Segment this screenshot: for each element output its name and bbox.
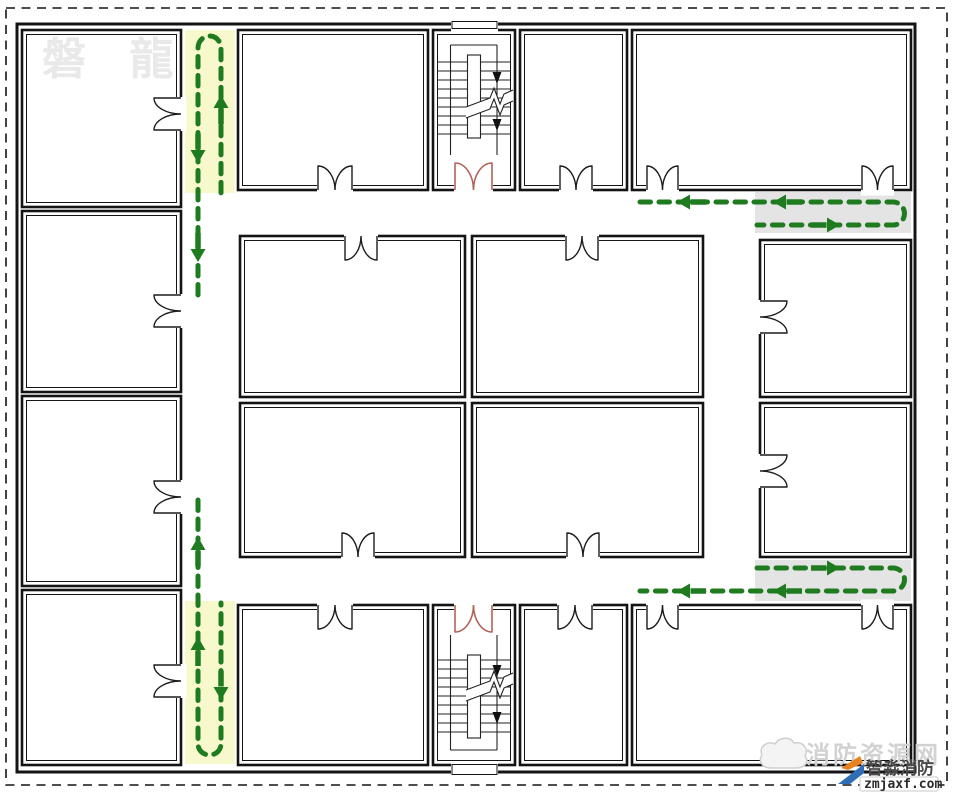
room-left-2 [22,211,181,392]
room-center-2 [472,236,703,397]
watermark-panlong: 磐 龍 [42,34,187,85]
watermark-brand-block: 消防资源网 智淼消防 zmjaxf.com [760,738,942,792]
room-bottom-2 [520,605,627,765]
room-center-4 [472,403,703,557]
evacuation-floor-plan-svg: 磐 龍 消防资源网 智淼消防 zmjaxf.com [0,0,955,798]
stair-top-stringer [468,55,481,138]
watermark-brand-name: 智淼消防 [866,758,934,779]
room-center-1 [240,236,465,397]
route-arrow-up [191,537,206,550]
floor-plan-page: 磐 龍 消防资源网 智淼消防 zmjaxf.com [0,0,955,798]
room-bottom-1 [238,605,428,765]
route-arrow-left [677,584,690,599]
exterior-exit-top [452,22,497,29]
room-top-2 [520,30,627,190]
walls-layer [17,19,915,778]
room-center-3 [240,403,465,557]
room-right-2 [760,403,911,557]
room-top-1 [238,30,428,190]
room-left-4 [22,590,181,765]
route-arrow-down [191,249,206,262]
room-top-right [632,30,911,190]
corridor-highlight-left-top [185,30,235,193]
corridor-highlight-left-bottom [185,601,235,764]
room-right-1 [760,240,911,397]
watermark-domain: zmjaxf.com [864,777,942,792]
cloud-mascot-icon [760,738,806,768]
room-left-3 [22,396,181,586]
exterior-exit-bottom [452,765,497,775]
route-arrow-left [677,195,690,210]
